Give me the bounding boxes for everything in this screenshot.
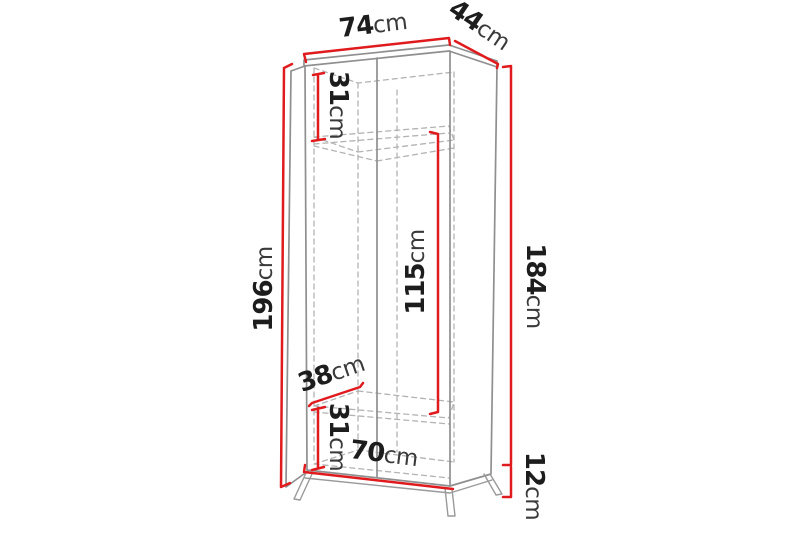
label-top-width: 74cm xyxy=(337,6,408,44)
dimension-lines xyxy=(281,38,511,497)
label-leg-height: 12cm xyxy=(519,452,549,520)
diagram-canvas: 74cm 44cm 31cm 196cm 115cm 184cm 38cm 31… xyxy=(0,0,800,533)
right-side-panel xyxy=(450,51,497,486)
dim-line-leg-height-12 xyxy=(503,467,511,497)
dim-line-hanging-height-115 xyxy=(430,132,438,414)
label-bottom-width: 70cm xyxy=(348,435,419,473)
label-hanging-space-height: 115cm xyxy=(401,229,431,314)
label-body-height: 184cm xyxy=(520,243,550,328)
wardrobe-dimension-drawing: 74cm 44cm 31cm 196cm 115cm 184cm 38cm 31… xyxy=(0,0,800,533)
dimension-labels: 74cm 44cm 31cm 196cm 115cm 184cm 38cm 31… xyxy=(249,0,550,520)
dim-line-body-height-184 xyxy=(503,66,511,465)
label-top-depth: 44cm xyxy=(443,0,516,57)
label-upper-compartment: 31cm xyxy=(323,71,353,139)
leg-left xyxy=(294,473,312,500)
label-total-height: 196cm xyxy=(249,246,279,331)
left-side-panel xyxy=(286,66,308,487)
bottom-edge xyxy=(307,470,450,486)
leg-right xyxy=(484,474,502,495)
